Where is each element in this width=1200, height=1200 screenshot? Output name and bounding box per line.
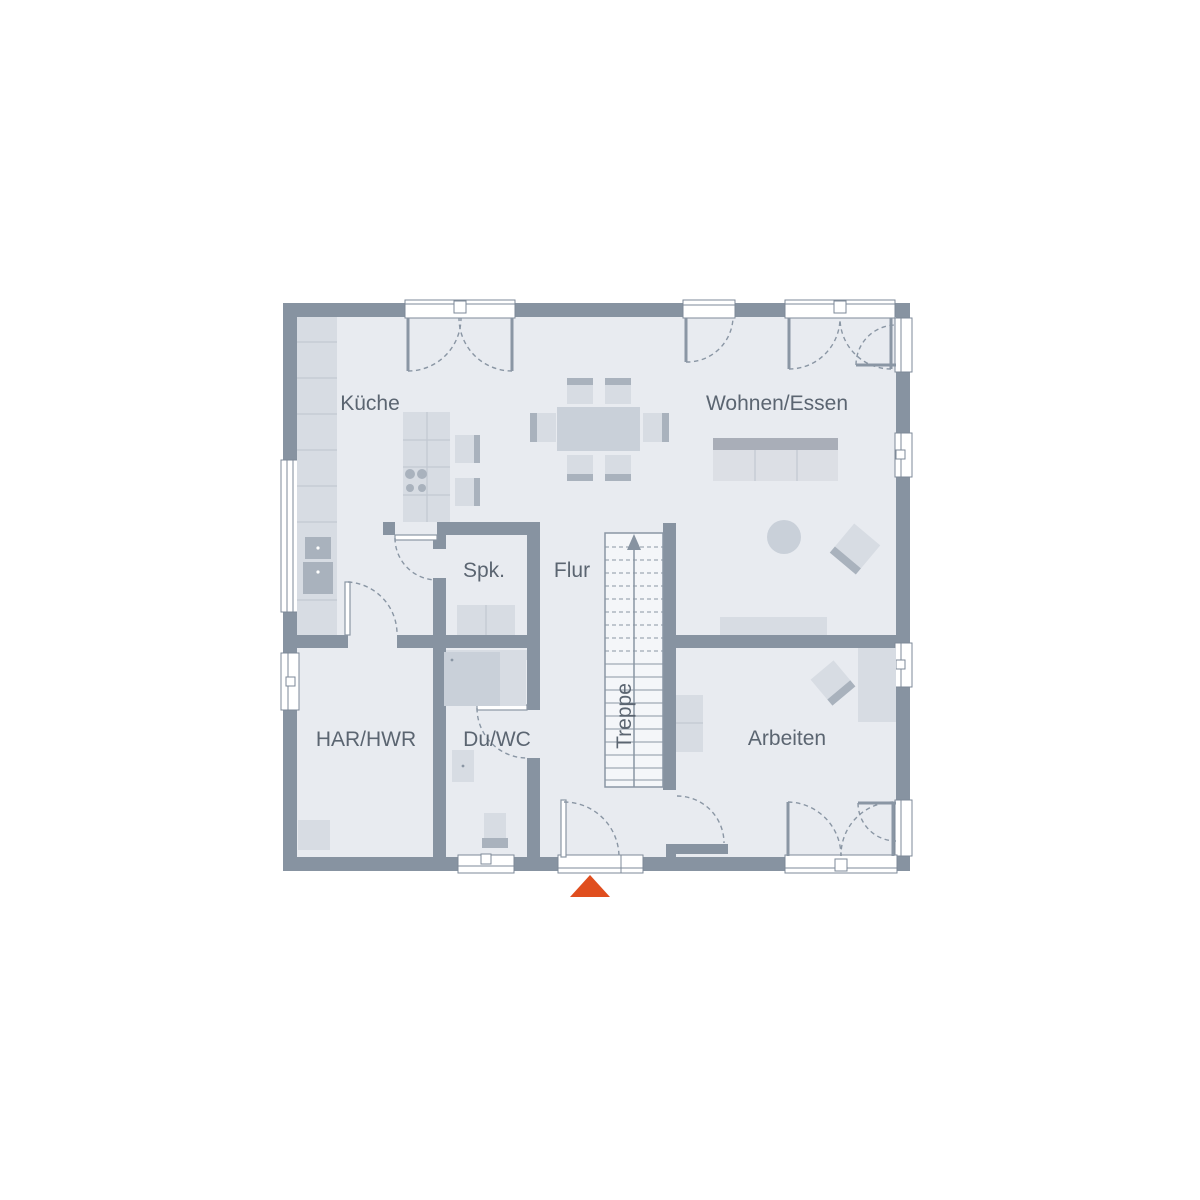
dining-table bbox=[557, 407, 640, 451]
bar-stool bbox=[455, 435, 480, 463]
desk bbox=[858, 648, 896, 722]
window-utility-left bbox=[281, 653, 299, 710]
staircase: Treppe bbox=[605, 533, 663, 787]
room-label-har-hwr: HAR/HWR bbox=[316, 728, 416, 751]
dining-chair bbox=[643, 413, 669, 442]
office-couch bbox=[676, 695, 703, 752]
room-label-wohnen-essen: Wohnen/Essen bbox=[706, 392, 848, 415]
sideboard bbox=[720, 617, 827, 635]
washing-machine bbox=[298, 820, 330, 850]
entrance-marker-triangle bbox=[570, 875, 610, 897]
window-office-right bbox=[895, 643, 912, 687]
room-label-flur: Flur bbox=[554, 559, 590, 582]
dining-chair bbox=[605, 378, 631, 404]
room-label-treppe: Treppe bbox=[613, 683, 636, 749]
floor-plan-page: Küche bbox=[0, 0, 1200, 1200]
shower-bench bbox=[500, 660, 526, 706]
pantry-cabinet bbox=[457, 605, 515, 635]
floor-plan: Küche bbox=[0, 0, 1200, 1200]
window-kitchen-left bbox=[281, 460, 299, 612]
dining-chair bbox=[567, 378, 593, 404]
toilet bbox=[482, 813, 508, 848]
dining-chair bbox=[530, 413, 556, 442]
room-label-du-wc: Du/WC bbox=[463, 728, 531, 751]
kitchen-cabinet-row bbox=[297, 317, 337, 635]
sofa bbox=[713, 438, 838, 481]
kitchen-oven-2 bbox=[303, 562, 333, 594]
coffee-table bbox=[767, 520, 801, 554]
washbasin bbox=[452, 750, 474, 782]
room-label-spk: Spk. bbox=[463, 559, 505, 582]
dining-chair bbox=[567, 455, 593, 481]
room-label-arbeiten: Arbeiten bbox=[748, 727, 826, 750]
window-shower-bottom bbox=[458, 854, 514, 873]
window-living-right bbox=[895, 433, 912, 477]
room-label-kueche: Küche bbox=[340, 392, 400, 415]
bar-stool bbox=[455, 478, 480, 506]
kitchen-island bbox=[403, 412, 450, 522]
dining-chair bbox=[605, 455, 631, 481]
